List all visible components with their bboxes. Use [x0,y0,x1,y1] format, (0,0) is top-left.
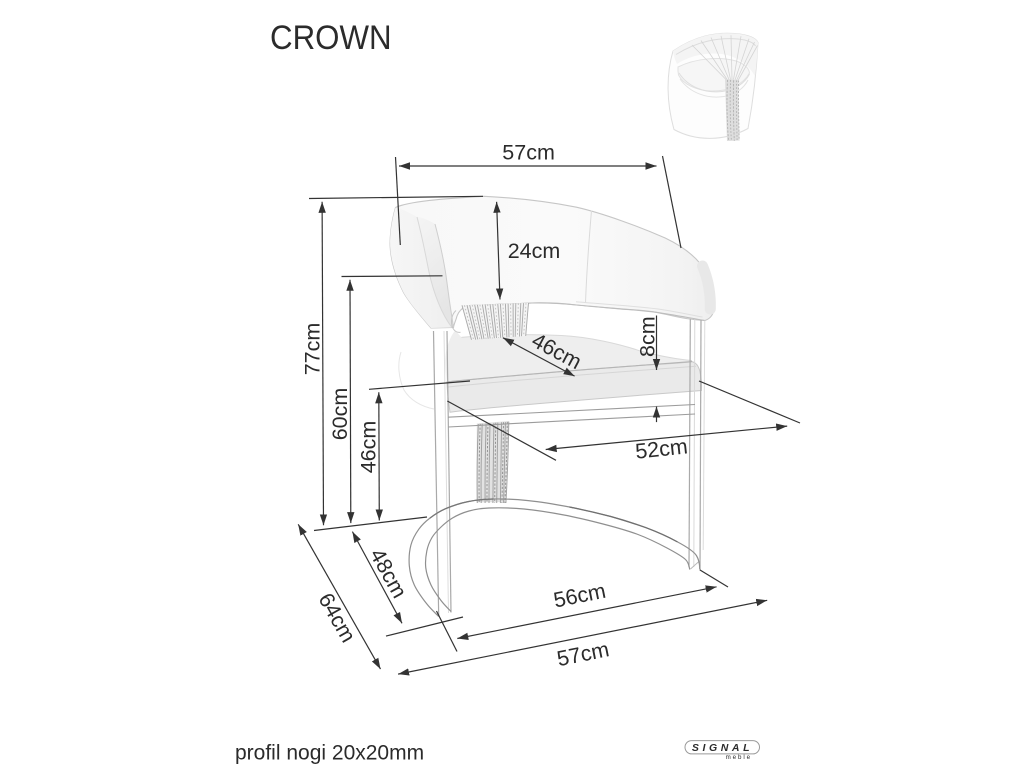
svg-text:64cm: 64cm [313,589,360,647]
svg-text:SIGNAL: SIGNAL [692,742,753,754]
svg-text:profil nogi 20x20mm: profil nogi 20x20mm [235,742,424,765]
svg-text:8cm: 8cm [636,316,660,357]
svg-text:meble: meble [726,754,752,761]
svg-text:52cm: 52cm [634,434,689,463]
svg-text:48cm: 48cm [365,545,411,603]
svg-text:60cm: 60cm [328,388,352,441]
svg-text:77cm: 77cm [300,323,324,376]
svg-text:CROWN: CROWN [270,18,392,57]
svg-text:56cm: 56cm [552,579,608,613]
svg-text:57cm: 57cm [555,637,611,671]
svg-text:57cm: 57cm [502,141,555,165]
svg-text:24cm: 24cm [508,239,561,263]
svg-text:46cm: 46cm [356,421,380,474]
